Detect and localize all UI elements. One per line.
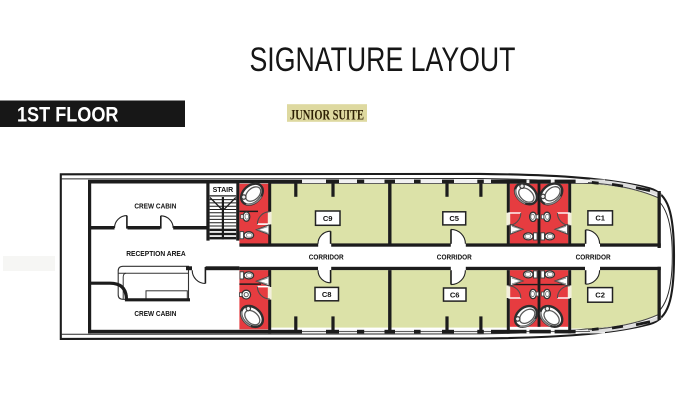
- svg-text:STAIR: STAIR: [213, 185, 234, 194]
- svg-text:C5: C5: [449, 214, 459, 223]
- svg-text:C1: C1: [595, 214, 605, 223]
- svg-text:JUNIOR SUITE: JUNIOR SUITE: [290, 107, 364, 123]
- svg-text:C8: C8: [322, 290, 332, 299]
- svg-text:1ST FLOOR: 1ST FLOOR: [17, 102, 119, 126]
- svg-text:CORRIDOR: CORRIDOR: [309, 253, 345, 262]
- svg-text:C6: C6: [450, 290, 460, 299]
- svg-text:SIGNATURE LAYOUT: SIGNATURE LAYOUT: [250, 41, 516, 79]
- svg-text:CREW CABIN: CREW CABIN: [134, 309, 176, 318]
- svg-text:CREW CABIN: CREW CABIN: [134, 201, 176, 210]
- svg-text:CORRIDOR: CORRIDOR: [576, 253, 612, 262]
- svg-text:RECEPTION AREA: RECEPTION AREA: [126, 249, 186, 258]
- svg-text:C9: C9: [323, 214, 333, 223]
- svg-text:CORRIDOR: CORRIDOR: [437, 253, 473, 262]
- svg-text:C2: C2: [595, 291, 605, 300]
